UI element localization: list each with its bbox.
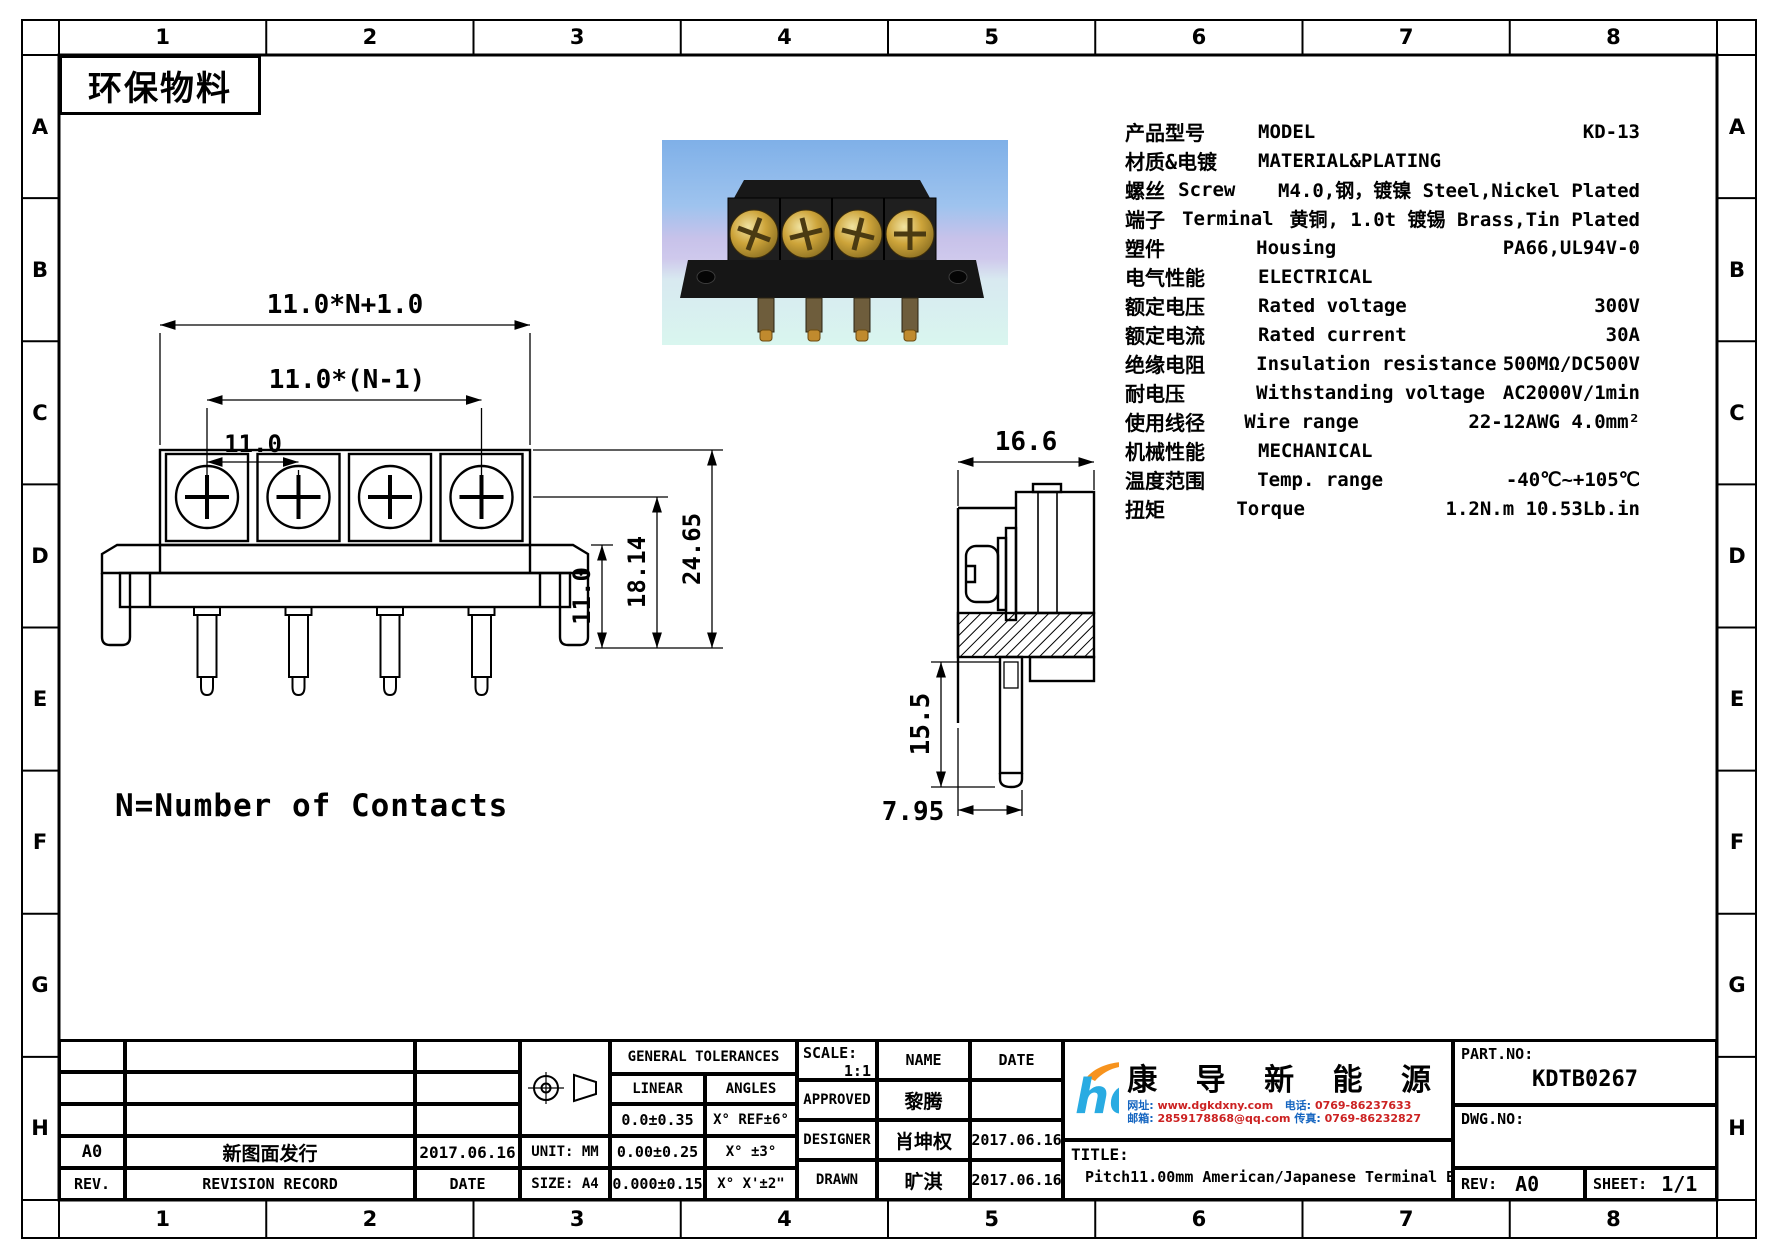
zone-col-label-bottom: 8 <box>1606 1207 1621 1231</box>
section-hatch <box>958 613 1094 657</box>
third-angle-projection-icon <box>526 1062 604 1114</box>
revision-empty-cell <box>59 1072 125 1104</box>
dim-pin-offset: 7.95 <box>882 797 945 827</box>
dim-mid-height: 18.14 <box>623 536 651 608</box>
eco-material-label: 环保物料 <box>59 55 261 115</box>
title-label: TITLE: <box>1071 1145 1445 1164</box>
side-body-outline <box>958 484 1094 787</box>
dim-overall-width: 11.0*N+1.0 <box>267 290 424 320</box>
zone-col-label-top: 1 <box>155 25 170 49</box>
zone-row-label-right: H <box>1728 1116 1746 1140</box>
mail-label: 邮箱: <box>1127 1112 1153 1125</box>
zone-row-label-right: E <box>1730 687 1744 711</box>
spec-cn: 产品型号 <box>1125 117 1258 146</box>
revision-empty-cell <box>59 1040 125 1072</box>
zone-row-label-left: E <box>33 687 47 711</box>
zone-col-label-top: 3 <box>570 25 585 49</box>
name-header: NAME <box>877 1040 970 1080</box>
zone-col-label-bottom: 2 <box>363 1207 378 1231</box>
spec-row: 额定电压Rated voltage300V <box>1125 291 1640 320</box>
spec-cn: 扭矩 <box>1125 494 1236 523</box>
drawing-sheet: 1122334455667788AABBCCDDEEFFGGHH 环保物料 <box>0 0 1778 1257</box>
spec-cn: 温度范围 <box>1125 465 1257 494</box>
spec-en: Torque <box>1236 498 1445 520</box>
scale-cell: SCALE: 1:1 <box>797 1040 877 1080</box>
revision-empty-cell <box>59 1104 125 1136</box>
dim-pin-length: 15.5 <box>906 693 936 756</box>
size-cell: SIZE: A4 <box>520 1168 610 1200</box>
company-contact-line2: 邮箱: 2859178868@qq.com 传真: 0769-86232827 <box>1127 1112 1445 1125</box>
spec-row: 额定电流Rated current30A <box>1125 320 1640 349</box>
spec-cn: 机械性能 <box>1125 436 1258 465</box>
tolerance-angle: X° ±3° <box>705 1136 797 1168</box>
zone-col-label-bottom: 3 <box>570 1207 585 1231</box>
sheet-value: 1/1 <box>1661 1172 1697 1196</box>
spec-val: -40℃~+105℃ <box>1506 469 1640 491</box>
zone-row-label-left: D <box>31 544 48 568</box>
date-header: DATE <box>970 1040 1063 1080</box>
front-view-drawing: 11.0*N+1.0 11.0*(N-1) 11.0 <box>75 255 735 715</box>
revision-header-record: REVISION RECORD <box>125 1168 415 1200</box>
revision-date: 2017.06.16 <box>415 1136 520 1168</box>
spec-cn: 额定电压 <box>1125 291 1258 320</box>
mail-value: 2859178868@qq.com <box>1157 1112 1290 1125</box>
zone-row-label-right: A <box>1729 115 1745 139</box>
side-view-drawing: 16.6 15.5 7.95 <box>795 380 1115 850</box>
revision-header-date: DATE <box>415 1168 520 1200</box>
dim-side-width: 16.6 <box>995 427 1058 457</box>
zone-col-label-top: 4 <box>777 25 792 49</box>
title-value: Pitch11.00mm American/Japanese Terminal … <box>1071 1168 1445 1186</box>
revision-rev: A0 <box>59 1136 125 1168</box>
pins-outline <box>194 607 495 695</box>
screw-profile <box>966 546 998 602</box>
spec-row: 绝缘电阻Insulation resistance500MΩ/DC500V <box>1125 349 1640 378</box>
zone-col-label-top: 7 <box>1399 25 1414 49</box>
dim-base-height: 11.0 <box>568 567 596 625</box>
spec-val: 22-12AWG 4.0mm² <box>1468 411 1640 433</box>
spec-cn: 绝缘电阻 <box>1125 349 1256 378</box>
spec-row: 机械性能MECHANICAL <box>1125 436 1640 465</box>
spec-en: Terminal <box>1182 208 1289 230</box>
tolerance-angle: X° REF±6° <box>705 1104 797 1136</box>
revision-empty-cell <box>415 1104 520 1136</box>
dwg-no-cell: DWG.NO: <box>1453 1105 1717 1168</box>
rev-label: REV: <box>1461 1175 1497 1193</box>
spec-row: 塑件HousingPA66,UL94V-0 <box>1125 233 1640 262</box>
signoff-name: 黎腾 <box>877 1080 970 1120</box>
spec-row: 使用线径Wire range22-12AWG 4.0mm² <box>1125 407 1640 436</box>
zone-row-label-left: F <box>33 830 47 854</box>
title-block: A0 新图面发行 2017.06.16 REV. REVISION RECORD… <box>59 1040 1717 1200</box>
sheet-label: SHEET: <box>1593 1175 1647 1193</box>
zone-col-label-top: 2 <box>363 25 378 49</box>
tolerance-linear: 0.000±0.15 <box>610 1168 705 1200</box>
spec-row: 产品型号MODELKD-13 <box>1125 117 1640 146</box>
tolerances-title: GENERAL TOLERANCES <box>610 1040 797 1074</box>
company-contact-line1: 网址: www.dgkdxny.com 电话: 0769-86237633 <box>1127 1099 1445 1112</box>
spec-row: 耐电压Withstanding voltageAC2000V/1min <box>1125 378 1640 407</box>
spec-val: 300V <box>1508 295 1640 317</box>
spec-row: 扭矩Torque1.2N.m 10.53Lb.in <box>1125 494 1640 523</box>
spec-val: M4.0,钢，镀镍 Steel,Nickel Plated <box>1278 176 1640 203</box>
zone-col-label-bottom: 6 <box>1192 1207 1207 1231</box>
tel-label: 电话: <box>1285 1099 1311 1112</box>
zone-row-label-left: G <box>31 973 48 997</box>
svg-text:hd: hd <box>1075 1069 1119 1125</box>
scale-value: 1:1 <box>803 1062 871 1080</box>
spec-row: 螺丝ScrewM4.0,钢，镀镍 Steel,Nickel Plated <box>1125 175 1640 204</box>
zone-row-label-left: C <box>32 401 47 425</box>
spec-cn: 耐电压 <box>1125 378 1256 407</box>
spec-cn: 端子 <box>1125 204 1182 233</box>
revision-header-rev: REV. <box>59 1168 125 1200</box>
spec-cn: 电气性能 <box>1125 262 1258 291</box>
zone-col-label-bottom: 4 <box>777 1207 792 1231</box>
zone-col-label-bottom: 5 <box>984 1207 999 1231</box>
signoff-role: APPROVED <box>797 1080 877 1120</box>
fax-label: 传真: <box>1294 1112 1320 1125</box>
tolerances-angles-label: ANGLES <box>705 1074 797 1104</box>
tolerance-linear: 0.00±0.25 <box>610 1136 705 1168</box>
zone-row-label-right: C <box>1729 401 1744 425</box>
spec-val: 黄铜, 1.0t 镀锡 Brass,Tin Plated <box>1289 205 1640 232</box>
zone-row-label-right: G <box>1728 973 1745 997</box>
spec-en: Rated current <box>1258 324 1508 346</box>
web-label: 网址: <box>1127 1099 1153 1112</box>
spec-en: MODEL <box>1258 121 1508 143</box>
signoff-date <box>970 1080 1063 1120</box>
zone-col-label-bottom: 1 <box>155 1207 170 1231</box>
company-name: 康 导 新 能 源 <box>1127 1055 1445 1099</box>
spec-val: 30A <box>1508 324 1640 346</box>
zone-row-label-right: F <box>1730 830 1744 854</box>
zone-col-label-top: 5 <box>984 25 999 49</box>
base-outline <box>102 545 588 645</box>
company-logo: hd <box>1071 1055 1119 1125</box>
spec-cn: 塑件 <box>1125 233 1256 262</box>
zone-row-label-right: D <box>1728 544 1745 568</box>
signoff-role: DRAWN <box>797 1160 877 1200</box>
spec-table: 产品型号MODELKD-13 材质&电镀MATERIAL&PLATING 螺丝S… <box>1125 117 1640 523</box>
spec-val: AC2000V/1min <box>1503 382 1640 404</box>
dim-total-height: 24.65 <box>678 513 706 585</box>
projection-symbol-cell <box>520 1040 610 1136</box>
zone-col-label-bottom: 7 <box>1399 1207 1414 1231</box>
scale-label: SCALE: <box>803 1044 871 1062</box>
company-cell: hd 康 导 新 能 源 网址: www.dgkdxny.com 电话: 076… <box>1063 1040 1453 1140</box>
fax-value: 0769-86232827 <box>1325 1112 1421 1125</box>
spec-row: 温度范围Temp. range-40℃~+105℃ <box>1125 465 1640 494</box>
revision-empty-cell <box>125 1072 415 1104</box>
revision-empty-cell <box>125 1104 415 1136</box>
title-cell: TITLE: Pitch11.00mm American/Japanese Te… <box>1063 1140 1453 1200</box>
zone-row-label-left: H <box>31 1116 49 1140</box>
tolerance-linear: 0.0±0.35 <box>610 1104 705 1136</box>
spec-val: PA66,UL94V-0 <box>1503 237 1640 259</box>
spec-en: MECHANICAL <box>1258 440 1508 462</box>
rev-cell: REV: A0 <box>1453 1168 1585 1200</box>
spec-row: 端子Terminal黄铜, 1.0t 镀锡 Brass,Tin Plated <box>1125 204 1640 233</box>
revision-empty-cell <box>415 1072 520 1104</box>
tolerance-angle: X° X'±2" <box>705 1168 797 1200</box>
part-no-label: PART.NO: <box>1461 1045 1709 1063</box>
signoff-date: 2017.06.16 <box>970 1120 1063 1160</box>
spec-en: Wire range <box>1244 411 1468 433</box>
zone-col-label-top: 6 <box>1192 25 1207 49</box>
tel-value: 0769-86237633 <box>1315 1099 1411 1112</box>
eco-material-text: 环保物料 <box>88 61 232 110</box>
web-value: www.dgkdxny.com <box>1157 1099 1273 1112</box>
part-no-value: KDTB0267 <box>1461 1067 1709 1092</box>
side-pin <box>1000 657 1022 773</box>
spec-en: MATERIAL&PLATING <box>1258 150 1508 172</box>
spec-row: 材质&电镀MATERIAL&PLATING <box>1125 146 1640 175</box>
contacts-note: N=Number of Contacts <box>115 788 508 824</box>
spec-en: Temp. range <box>1257 469 1506 491</box>
rev-value: A0 <box>1515 1172 1539 1196</box>
zone-row-label-right: B <box>1729 258 1745 282</box>
revision-empty-cell <box>415 1040 520 1072</box>
sheet-cell: SHEET: 1/1 <box>1585 1168 1717 1200</box>
spec-val: 1.2N.m 10.53Lb.in <box>1446 498 1640 520</box>
spec-val: 500MΩ/DC500V <box>1503 353 1640 375</box>
signoff-role: DESIGNER <box>797 1120 877 1160</box>
spec-en: Housing <box>1256 237 1503 259</box>
spec-en: Insulation resistance <box>1256 353 1503 375</box>
tolerances-linear-label: LINEAR <box>610 1074 705 1104</box>
unit-cell: UNIT: MM <box>520 1136 610 1168</box>
zone-row-label-left: B <box>32 258 48 282</box>
spec-cn: 额定电流 <box>1125 320 1258 349</box>
revision-empty-cell <box>125 1040 415 1072</box>
spec-en: ELECTRICAL <box>1258 266 1508 288</box>
spec-cn: 材质&电镀 <box>1125 146 1258 175</box>
signoff-date: 2017.06.16 <box>970 1160 1063 1200</box>
zone-row-label-left: A <box>32 115 48 139</box>
spec-en: Withstanding voltage <box>1256 382 1503 404</box>
spec-row: 电气性能ELECTRICAL <box>1125 262 1640 291</box>
signoff-name: 旷淇 <box>877 1160 970 1200</box>
revision-record: 新图面发行 <box>125 1136 415 1168</box>
spec-en: Screw <box>1178 179 1278 201</box>
spec-cn: 螺丝 <box>1125 175 1178 204</box>
part-no-cell: PART.NO: KDTB0267 <box>1453 1040 1717 1105</box>
spec-en: Rated voltage <box>1258 295 1508 317</box>
dim-span-width: 11.0*(N-1) <box>269 365 426 395</box>
zone-col-label-top: 8 <box>1606 25 1621 49</box>
spec-cn: 使用线径 <box>1125 407 1244 436</box>
spec-val: KD-13 <box>1508 121 1640 143</box>
signoff-name: 肖坤权 <box>877 1120 970 1160</box>
